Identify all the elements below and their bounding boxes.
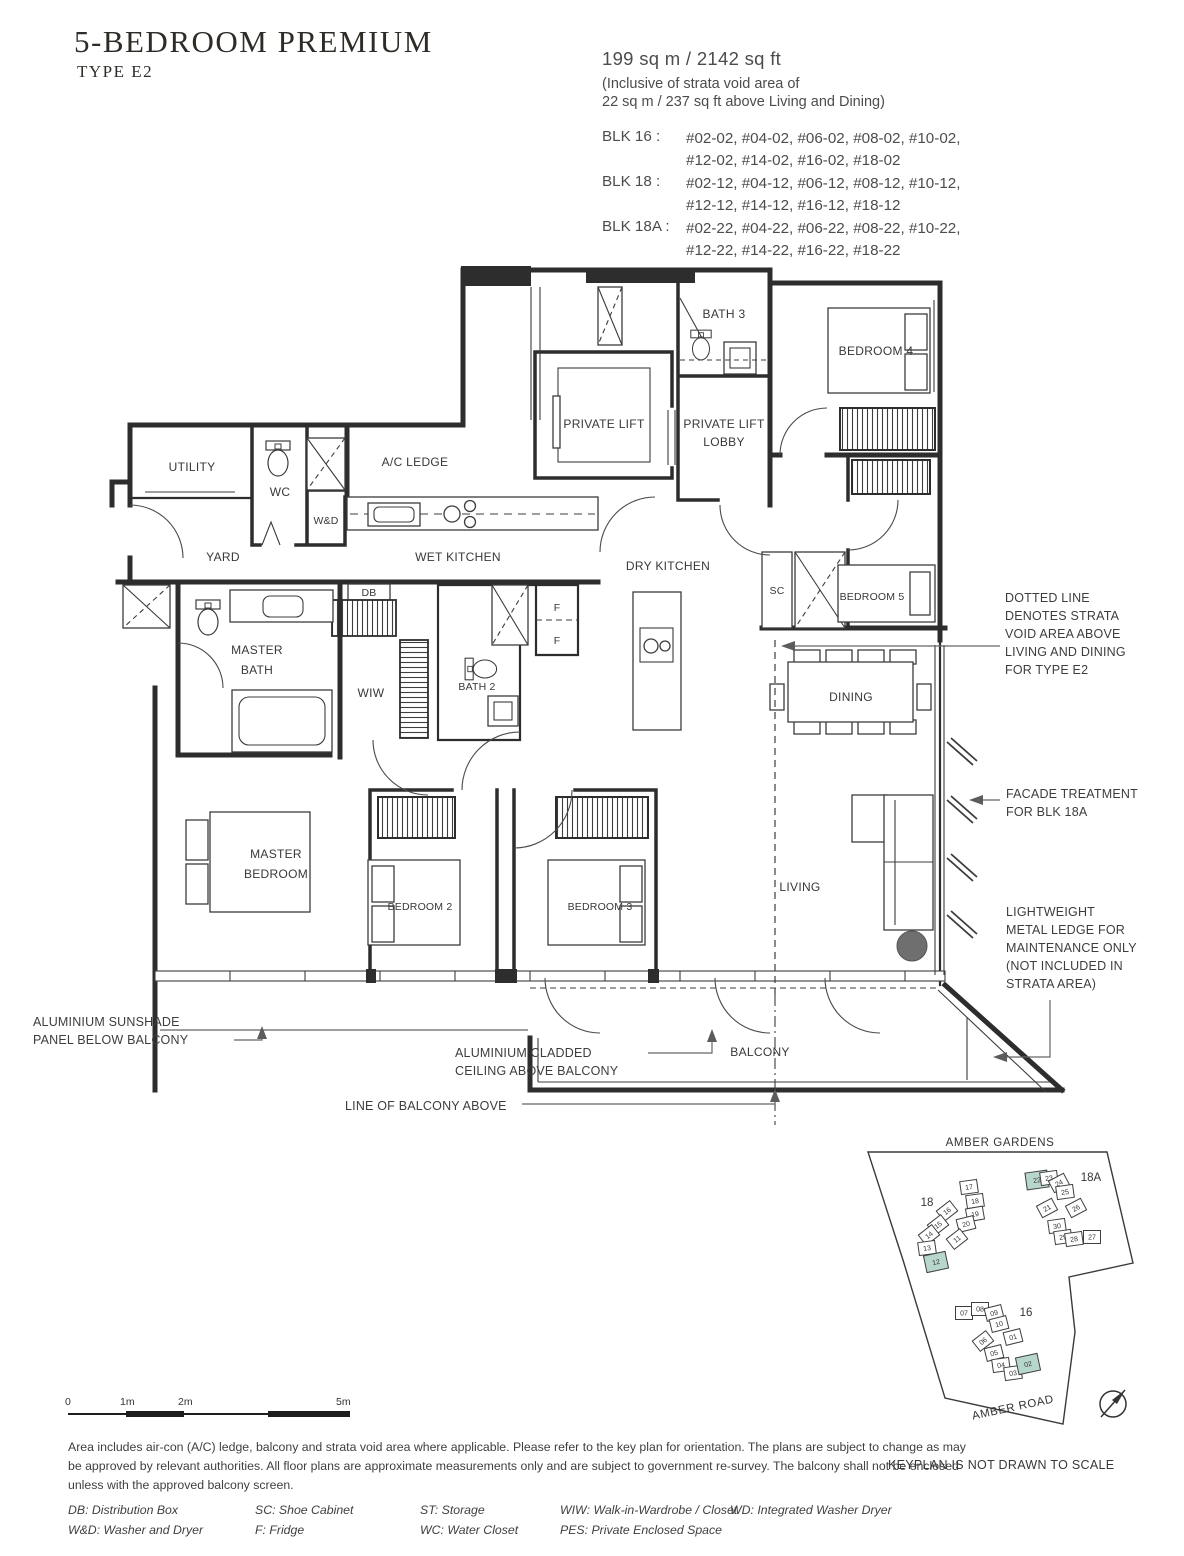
room-label-master-bath: MASTER [231, 643, 283, 657]
keyplan-unit: 01 [1003, 1329, 1023, 1346]
room-label-wiw: WIW [358, 686, 385, 700]
room-label-bath2: BATH 2 [458, 681, 495, 693]
annotation-strata-void: VOID AREA ABOVE [1005, 627, 1121, 641]
room-label-fridge: F [554, 635, 561, 647]
scale-bar: 0 1m 2m 5m [65, 1396, 351, 1417]
room-label-master-bath: BATH [241, 663, 273, 677]
keyplan-boundary [868, 1152, 1133, 1424]
svg-text:28: 28 [1070, 1236, 1079, 1244]
toilet-icon [465, 658, 497, 680]
room-label-private-lift: PRIVATE LIFT [563, 417, 645, 431]
legend-item: ST: Storage [420, 1503, 485, 1517]
legend-item: W&D: Washer and Dryer [68, 1523, 203, 1537]
annotation-strata-void: DENOTES STRATA [1005, 609, 1120, 623]
room-label-ac-ledge: A/C LEDGE [382, 455, 449, 469]
legend-item: WC: Water Closet [420, 1523, 518, 1537]
legend-item: SC: Shoe Cabinet [255, 1503, 353, 1517]
disclaimer-line: be approved by relevant authorities. All… [68, 1457, 959, 1476]
svg-text:03: 03 [1009, 1370, 1018, 1378]
facade-ticks [947, 738, 977, 938]
keyplan-unit: 02 [1015, 1353, 1040, 1374]
scale-label: 0 [65, 1396, 71, 1408]
annotation-strata-void: LIVING AND DINING [1005, 645, 1126, 659]
closet-hatch [332, 600, 396, 636]
annotation-facade: FOR BLK 18A [1006, 805, 1088, 819]
keyplan-unit: 28 [1065, 1231, 1084, 1246]
keyplan-unit: 11 [946, 1229, 967, 1250]
shower-icon [488, 696, 518, 726]
legend-item: PES: Private Enclosed Space [560, 1523, 722, 1537]
annotation-metal-ledge: STRATA AREA) [1006, 977, 1096, 991]
room-label-living: LIVING [779, 880, 820, 894]
room-label-bedroom2: BEDROOM 2 [388, 901, 453, 913]
kitchen-counter-icon [347, 497, 598, 530]
room-label-sc: SC [770, 585, 785, 597]
svg-text:25: 25 [1061, 1189, 1070, 1197]
shaft-icon [598, 287, 622, 345]
room-label-master-bedroom: MASTER [250, 847, 302, 861]
scale-label: 5m [336, 1396, 351, 1408]
wardrobe-icon [840, 408, 935, 450]
svg-text:18: 18 [971, 1198, 980, 1206]
room-label-yard: YARD [206, 550, 240, 564]
room-label-bedroom4: BEDROOM 4 [839, 344, 914, 358]
sofa-icon [852, 795, 933, 961]
floor-plan-drawing: UTILITY WC W&D A/C LEDGE PRIVATE LIFT PR… [0, 0, 1184, 1556]
svg-text:13: 13 [923, 1245, 932, 1253]
annotation-facade: FACADE TREATMENT [1006, 787, 1138, 801]
keyplan: AMBER GARDENS 17181920111615141312182223… [868, 1137, 1133, 1424]
shaft-icon [492, 585, 528, 645]
bed-icon [186, 812, 310, 912]
annotation-cladded-ceiling: CEILING ABOVE BALCONY [455, 1064, 619, 1078]
room-label-utility: UTILITY [169, 460, 216, 474]
svg-text:30: 30 [1053, 1223, 1062, 1231]
scale-label: 1m [120, 1396, 135, 1408]
annotation-cladded-ceiling: ALUMINIUM CLADDED [455, 1046, 592, 1060]
annotation-metal-ledge: (NOT INCLUDED IN [1006, 959, 1123, 973]
keyplan-block-label: 18 [921, 1197, 934, 1209]
room-label-lift-lobby: LOBBY [703, 435, 745, 449]
svg-text:07: 07 [960, 1311, 968, 1318]
legend-item: WIW: Walk-in-Wardrobe / Closet [560, 1503, 737, 1517]
svg-text:27: 27 [1088, 1235, 1096, 1242]
room-label-wd: W&D [313, 515, 338, 527]
room-label-wc: WC [270, 485, 291, 499]
wardrobe-icon [378, 797, 455, 838]
legend-item: DB: Distribution Box [68, 1503, 178, 1517]
wardrobe-icon [852, 460, 930, 494]
annotation-sunshade: PANEL BELOW BALCONY [33, 1033, 189, 1047]
svg-text:08: 08 [976, 1307, 984, 1314]
legend-item: F: Fridge [255, 1523, 304, 1537]
keyplan-note: KEYPLAN IS NOT DRAWN TO SCALE [888, 1458, 1114, 1472]
room-label-dry-kitchen: DRY KITCHEN [626, 559, 710, 573]
annotation-strata-void: FOR TYPE E2 [1005, 663, 1088, 677]
annotation-balcony-line: LINE OF BALCONY ABOVE [345, 1099, 507, 1113]
scale-label: 2m [178, 1396, 193, 1408]
room-label-bedroom3: BEDROOM 3 [568, 901, 633, 913]
shaft-icon [123, 585, 170, 628]
compass-icon [1100, 1390, 1126, 1417]
keyplan-road-bottom: AMBER ROAD [971, 1393, 1055, 1422]
annotation-sunshade: ALUMINIUM SUNSHADE [33, 1015, 180, 1029]
keyplan-road-top: AMBER GARDENS [946, 1137, 1055, 1149]
wardrobe-icon [556, 797, 648, 838]
keyplan-unit: 07 [956, 1307, 973, 1320]
room-label-bath3: BATH 3 [703, 307, 746, 321]
room-label-dining: DINING [829, 690, 873, 704]
room-label-master-bedroom: BEDROOM [244, 867, 308, 881]
bifold-door-icon [262, 522, 280, 545]
basin-icon [724, 342, 756, 374]
keyplan-block-label: 18A [1081, 1172, 1102, 1184]
room-label-wet-kitchen: WET KITCHEN [415, 550, 501, 564]
floorplan-page: 5-BEDROOM PREMIUM TYPE E2 199 sq m / 214… [0, 0, 1184, 1556]
keyplan-unit: 27 [1084, 1231, 1101, 1244]
toilet-icon [266, 441, 290, 476]
keyplan-unit: 17 [960, 1179, 979, 1194]
svg-text:17: 17 [965, 1184, 974, 1192]
room-label-fridge: F [554, 602, 561, 614]
keyplan-block-label: 16 [1020, 1307, 1033, 1319]
shaft-icon [307, 438, 345, 490]
room-label-lift-lobby: PRIVATE LIFT [683, 417, 765, 431]
annotation-metal-ledge: METAL LEDGE FOR [1006, 923, 1125, 937]
keyplan-unit: 25 [1056, 1184, 1075, 1199]
wiw-shelving [400, 640, 428, 738]
toilet-icon [691, 330, 711, 360]
annotation-strata-void: DOTTED LINE [1005, 591, 1090, 605]
room-label-bedroom5: BEDROOM 5 [840, 591, 905, 603]
legend-item: WD: Integrated Washer Dryer [730, 1503, 892, 1517]
kitchen-island-icon [633, 592, 681, 730]
keyplan-unit: 26 [1065, 1198, 1086, 1217]
disclaimer-line: unless with the approved balcony screen. [68, 1476, 294, 1495]
keyplan-unit: 21 [1036, 1198, 1057, 1217]
annotation-metal-ledge: LIGHTWEIGHT [1006, 905, 1095, 919]
annotation-metal-ledge: MAINTENANCE ONLY [1006, 941, 1137, 955]
room-label-db: DB [362, 587, 377, 599]
disclaimer-line: Area includes air-con (A/C) ledge, balco… [68, 1438, 966, 1457]
room-label-balcony: BALCONY [730, 1045, 789, 1059]
